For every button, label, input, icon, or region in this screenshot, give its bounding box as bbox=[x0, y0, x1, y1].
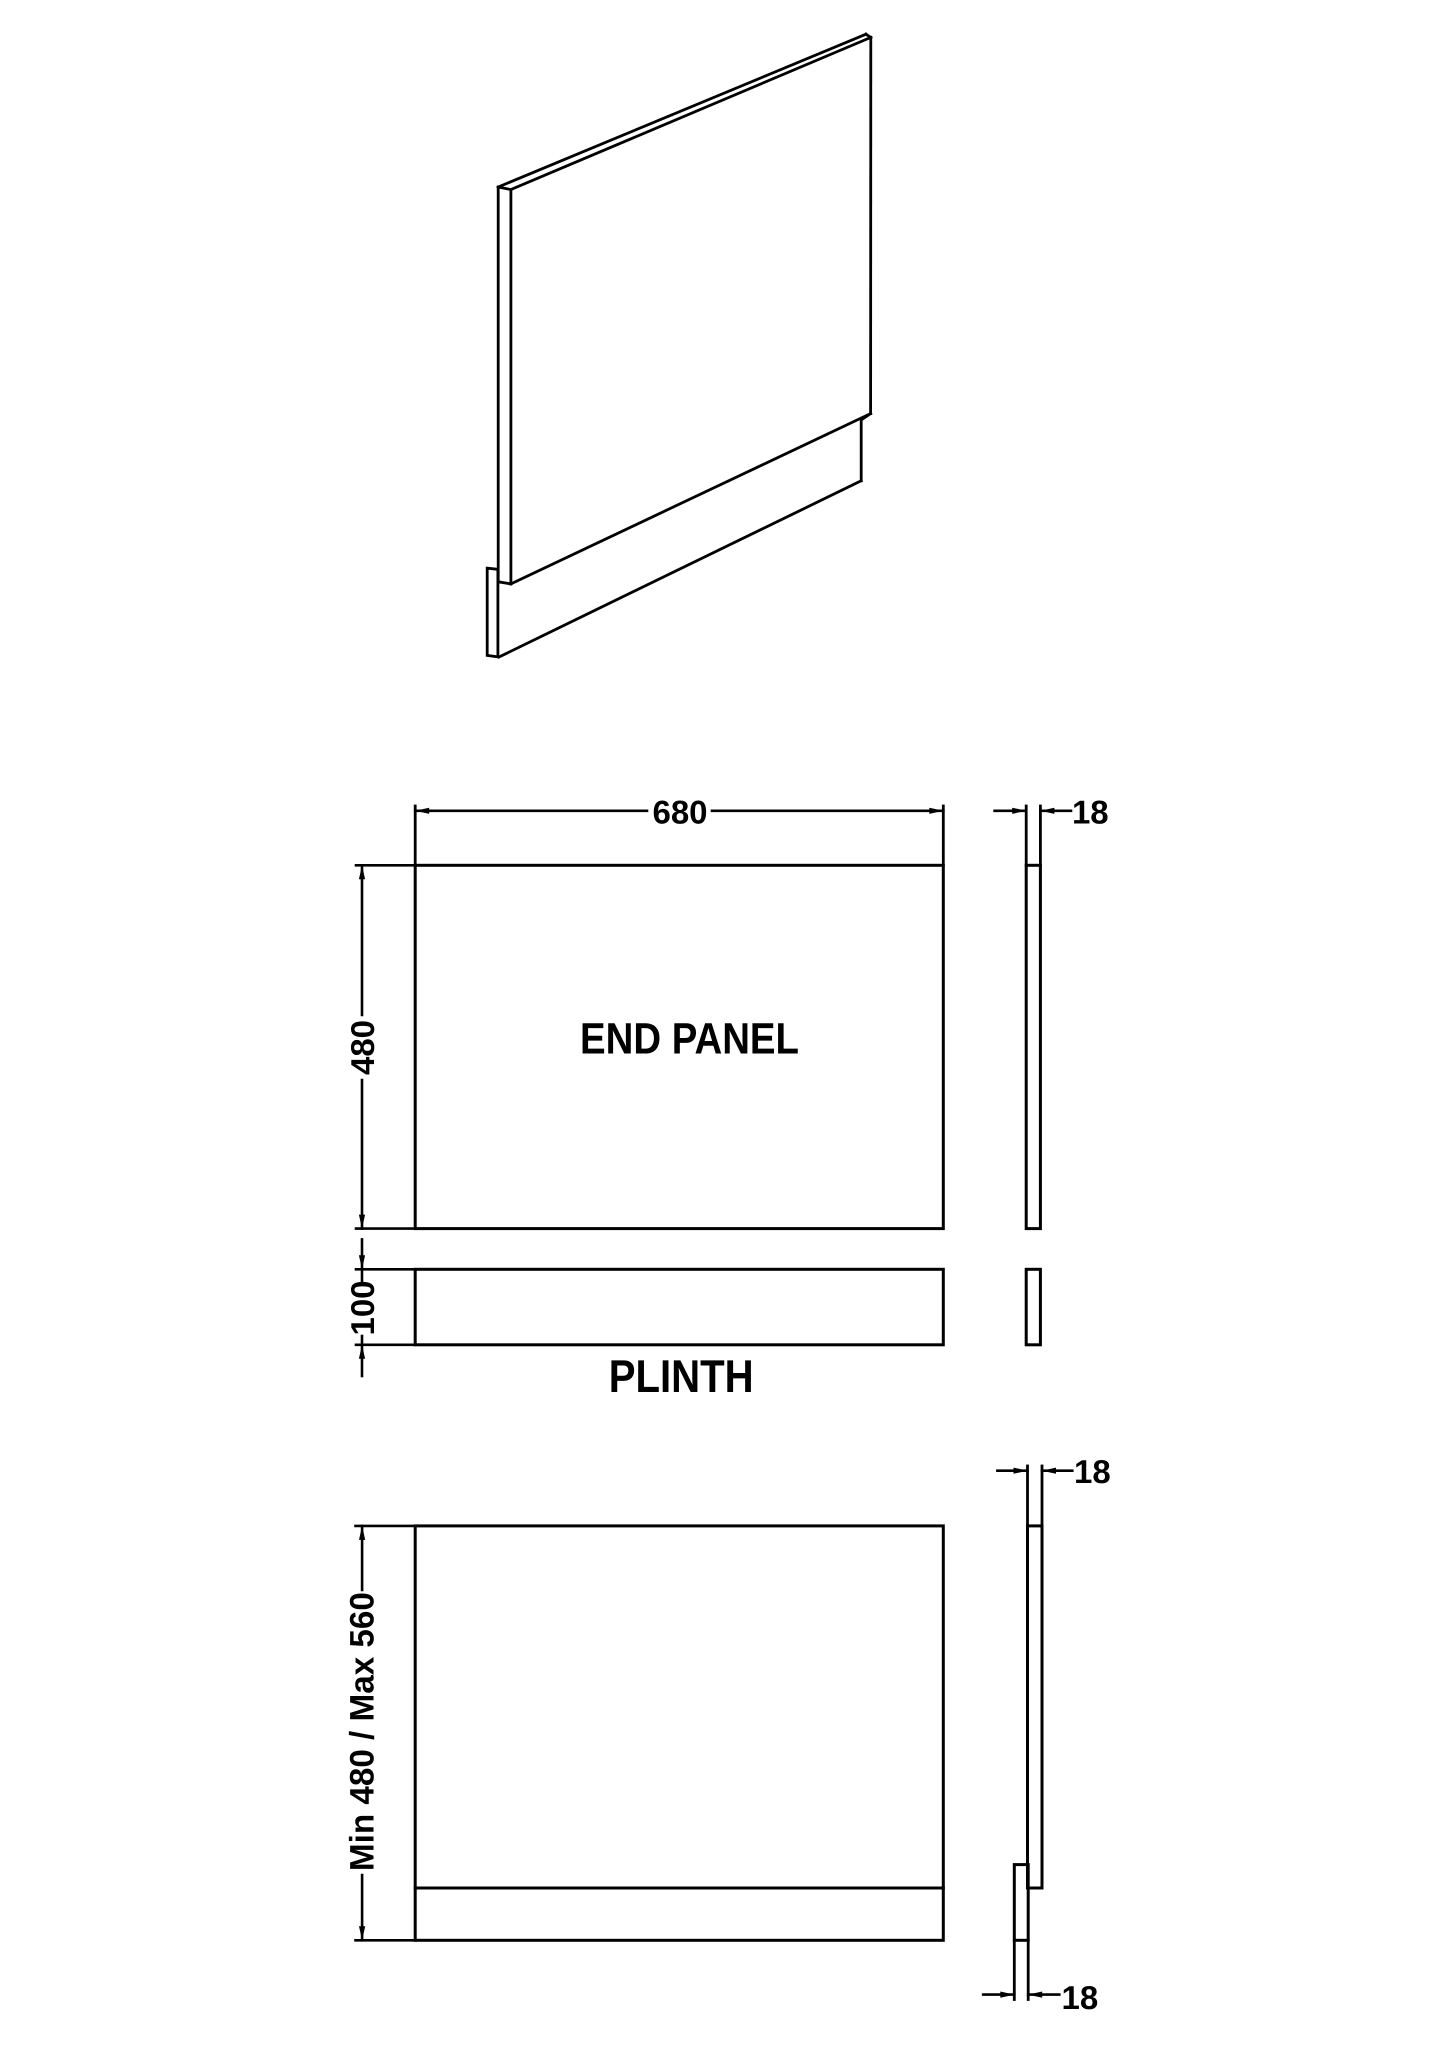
svg-text:18: 18 bbox=[1062, 1979, 1099, 2016]
svg-text:480: 480 bbox=[344, 1020, 381, 1075]
svg-text:Min 480 / Max 560: Min 480 / Max 560 bbox=[344, 1592, 382, 1871]
svg-text:PLINTH: PLINTH bbox=[609, 1350, 754, 1402]
svg-text:680: 680 bbox=[652, 793, 707, 830]
svg-text:END PANEL: END PANEL bbox=[580, 1015, 799, 1064]
svg-text:18: 18 bbox=[1074, 1453, 1111, 1490]
svg-text:18: 18 bbox=[1072, 793, 1109, 830]
svg-text:100: 100 bbox=[344, 1280, 381, 1335]
